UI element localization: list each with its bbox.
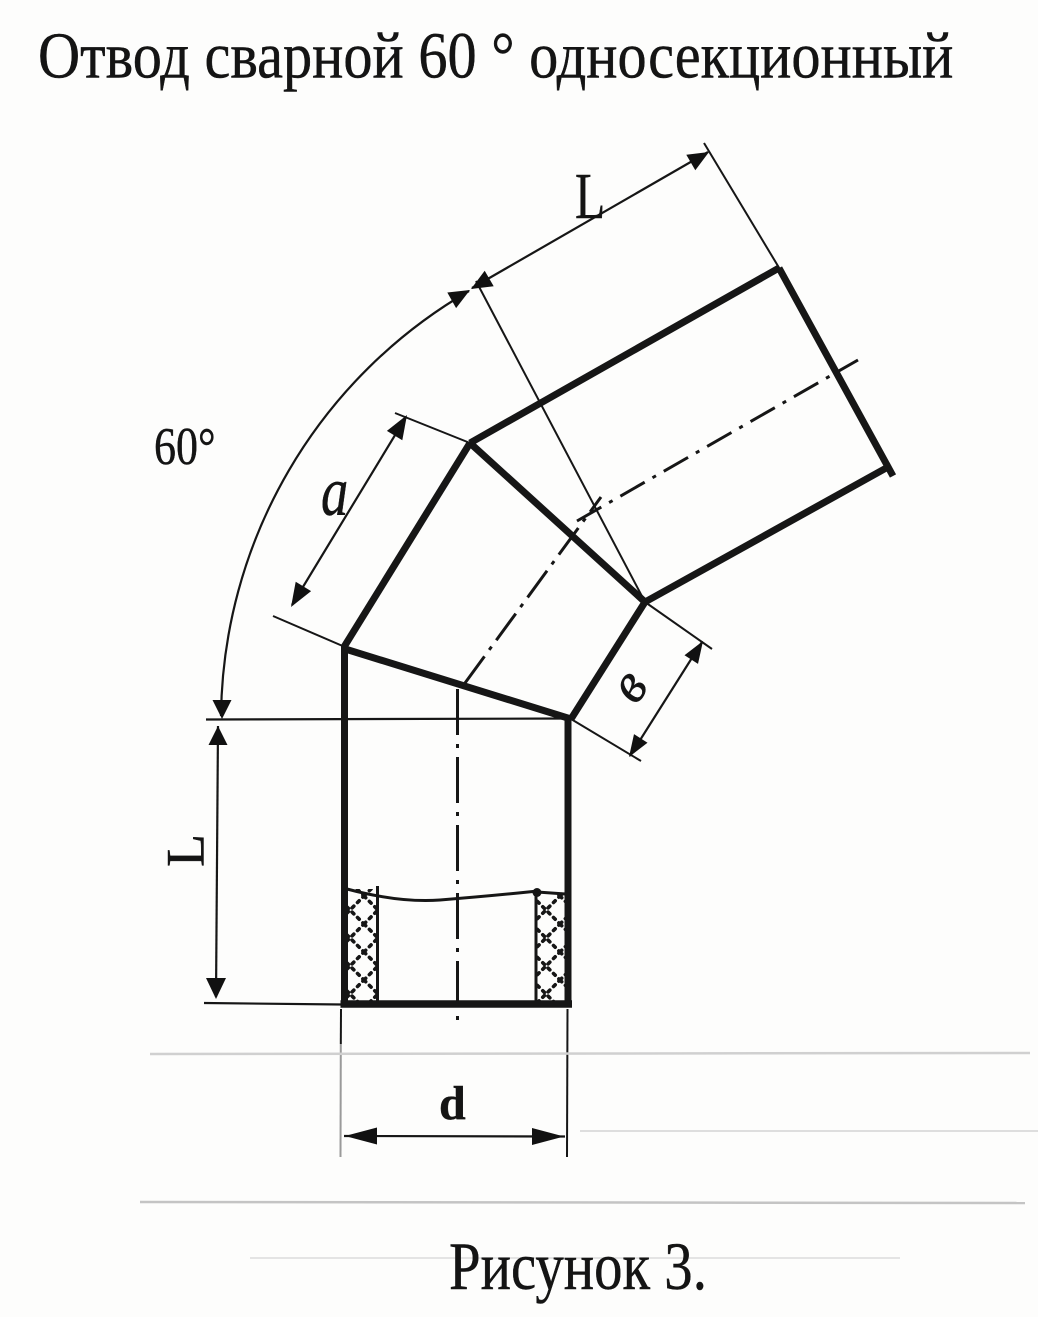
svg-text:60°: 60° [154, 417, 216, 476]
svg-text:в: в [596, 658, 661, 713]
svg-text:L: L [575, 159, 605, 233]
svg-text:L: L [156, 834, 216, 867]
svg-text:a: a [321, 453, 348, 531]
svg-text:Отвод сварной 60 ° односекцион: Отвод сварной 60 ° односекционный [38, 20, 953, 92]
svg-text:Рисунок 3.: Рисунок 3. [449, 1228, 707, 1304]
svg-text:d: d [439, 1077, 466, 1130]
